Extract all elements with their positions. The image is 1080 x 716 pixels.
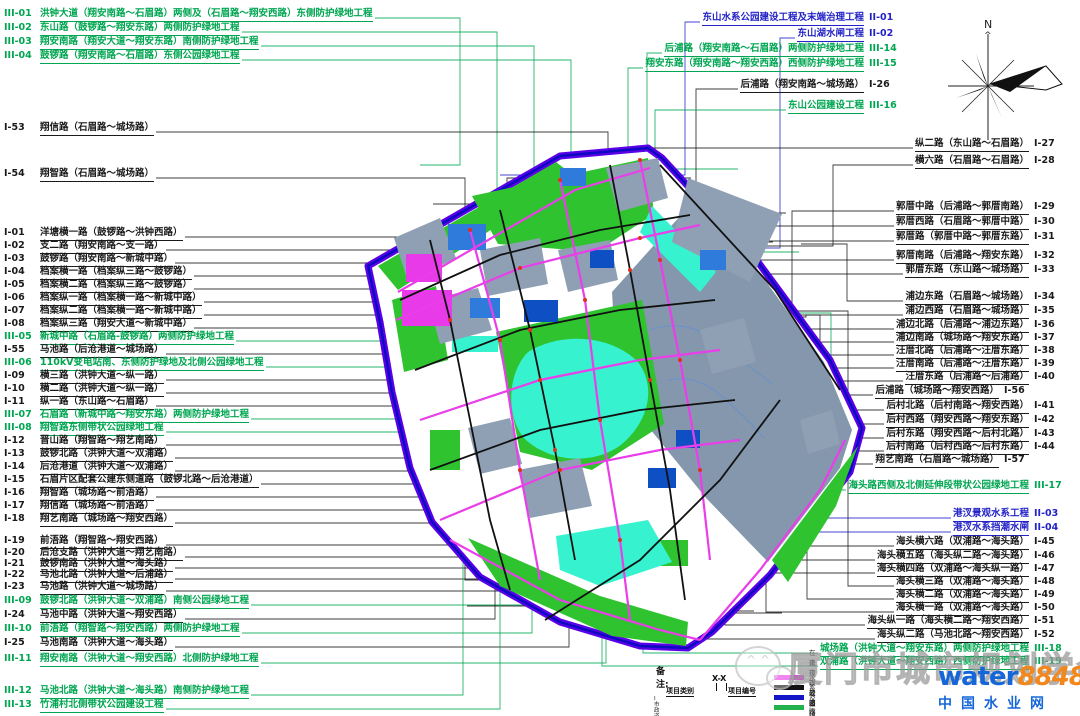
project-title: 后浦路（城场路～翔安西路） [875,385,999,399]
project-title: 石眉片区配套公建东侧道路（鼓锣北路～后沧港道） [40,474,259,488]
project-code: I-05 [4,279,40,291]
project-title: 马池路（洪钟大道～城场路） [40,581,164,595]
project-code: I-24 [4,609,40,621]
project-code: III-13 [4,699,40,711]
project-title: 马池中路（洪钟大道～翔安西路） [40,609,183,623]
project-title: 档案纵一路（档案横一路～新城中路） [40,292,202,306]
project-title: 后村西路（翔安西路～翔安东路） [886,414,1029,428]
project-label-row-i-44: 后村南路（后村西路～后村东路）I-44 [886,441,1070,454]
project-code: I-42 [1029,414,1070,426]
project-label-row-i-34: 浦边东路（石眉路～城场路）I-34 [905,291,1070,304]
project-label-row-i-15: I-15石眉片区配套公建东侧道路（鼓锣北路～后沧港道） [4,474,259,487]
project-label-row-i-01: I-01洋塘横一路（鼓锣路～洪钟西路） [4,227,183,240]
project-title: 新城中路（石眉路-鼓锣路）两侧防护绿地工程 [40,331,234,345]
project-title: 港汊景观水系工程 [953,508,1029,522]
project-label-row-i-16: I-16翔智路（城场路～前浯路） [4,487,154,500]
project-code: I-41 [1029,400,1070,412]
project-code: I-10 [4,383,40,395]
master-plan-map [368,148,862,648]
project-label-row-i-33: 郭厝东路（东山路～城场路）I-33 [905,264,1070,277]
project-title: 翔信路（城场路～前浯路） [40,500,154,514]
project-code: I-16 [4,487,40,499]
project-label-row-ii-01: 东山水系公园建设工程及末端治理工程II-01 [702,12,905,25]
project-label-row-i-36: 浦边北路（后浦路～浦边东路）I-36 [896,319,1070,332]
project-title: 郭厝路（郭厝中路～郭厝东路） [896,231,1029,245]
project-label-row-i-35: 浦边西路（石眉路～城场路）I-35 [905,305,1070,318]
project-code: III-10 [4,623,40,635]
project-title: 档案纵二路（档案横一路～新城中路） [40,305,202,319]
project-label-row-iii-11: III-11翔安南路（洪钟大道～翔安西路）北侧防护绿地工程 [4,653,259,666]
project-title: 浦边南路（城场路～翔安东路） [896,332,1029,346]
logo-8848: 8848 [1017,662,1080,692]
wechat-bubble-icon: ^ ^ [732,640,796,698]
project-label-row-iii-06: III-06110kV变电站南、东侧防护绿地及北侧公园绿地工程 [4,357,264,370]
project-code: I-33 [1029,264,1070,276]
project-label-row-i-42: 后村西路（翔安西路～翔安东路）I-42 [886,414,1070,427]
project-title: 马池南路（洪钟大道～海头路） [40,637,173,651]
project-code: I-27 [1029,138,1070,150]
project-code: I-36 [1029,319,1070,331]
project-title: 档案横二路（档案纵三路～鼓锣路） [40,279,192,293]
project-label-row-i-47: 海头横四路（双浦路～海头纵一路）I-47 [877,563,1070,576]
project-title: 浦边西路（石眉路～城场路） [905,305,1029,319]
project-title: 海头纵二路（马池北路～翔安西路） [877,629,1029,643]
project-label-row-i-38: 汪厝北路（后浦路～汪厝东路）I-38 [896,345,1070,358]
project-title: 海头路西侧及北侧延伸段带状公园绿地工程 [848,480,1029,494]
project-label-row-i-52: 海头纵二路（马池北路～翔安西路）I-52 [877,629,1070,642]
project-label-row-i-18: I-18翔艺南路（城场路～翔安西路） [4,513,173,526]
project-title: 汪厝北路（后浦路～汪厝东路） [896,345,1029,359]
project-label-row-i-13: I-13鼓锣北路（洪钟大道～双浦路） [4,448,173,461]
project-code: III-14 [864,43,905,55]
project-label-row-i-32: 郭厝南路（后浦路～翔安东路）I-32 [896,250,1070,263]
project-title: 海头横四路（双浦路～海头纵一路） [877,563,1029,577]
project-code: I-37 [1029,332,1070,344]
project-code: I-26 [864,79,905,91]
project-title: 东山路（鼓锣路～翔安东路）两侧防护绿地工程 [40,22,240,36]
project-code: I-43 [1029,428,1070,440]
project-code: I-25 [4,637,40,649]
project-label-row-i-30: 郭厝西路（石眉路～郭厝中路）I-30 [896,216,1070,229]
project-title: 翔智路（石眉路～城场路） [40,168,154,182]
project-title: 翔安南路（洪钟大道～翔安西路）北侧防护绿地工程 [40,653,259,667]
project-label-row-ii-02: 东山湖水闸工程II-02 [797,28,905,41]
project-code: I-50 [1029,602,1070,614]
project-title: 晋山路（翔智路～翔艺南路） [40,435,164,449]
project-label-row-iii-09: III-09鼓锣北路（洪钟大道～双浦路）南侧公园绿地工程 [4,595,249,608]
project-title: 110kV变电站南、东侧防护绿地及北侧公园绿地工程 [40,357,264,371]
project-title: 海头纵一路（海头横二路～翔安西路） [867,615,1029,629]
project-code: I-54 [4,168,40,180]
project-code: II-04 [1029,522,1070,534]
project-title: 支二路（翔安南路～支一路） [40,240,164,254]
project-label-row-ii-03: 港汊景观水系工程II-03 [953,508,1070,521]
project-code: I-18 [4,513,40,525]
project-title: 翔艺南路（石眉路～城场路） [875,454,999,468]
project-title: 横六路（石眉路～石眉路） [915,155,1029,169]
project-label-row-i-12: I-12晋山路（翔智路～翔艺南路） [4,435,164,448]
project-label-row-i-04: I-04档案横一路（档案纵三路～鼓锣路） [4,266,192,279]
project-code: I-19 [4,535,40,547]
project-label-row-i-50: 海头横一路（双浦路～海头路）I-50 [896,602,1070,615]
project-label-row-i-49: 海头横二路（双浦路～海头路）I-49 [896,589,1070,602]
project-code: III-02 [4,22,40,34]
project-code: I-55 [4,344,40,356]
project-title: 竹浦村北侧带状公园建设工程 [40,699,164,713]
project-title: 纵二路（东山路～石眉路） [915,138,1029,152]
project-label-row-iii-07: III-07石眉路（新城中路～翔安东路）两侧防护绿地工程 [4,409,249,422]
project-code: III-06 [4,357,40,369]
project-title: 洪钟大道（翔安南路～石眉路）两侧及（石眉路～翔安西路）东侧防护绿地工程 [40,8,373,22]
project-title: 东山公园建设工程 [788,100,864,114]
project-label-row-i-53: I-53翔信路（石眉路～城场路） [4,122,154,135]
project-code: II-03 [1029,508,1070,520]
compass-n-label: N [984,18,992,31]
project-label-row-i-28: 横六路（石眉路～石眉路）I-28 [915,155,1070,168]
project-code: I-23 [4,581,40,593]
project-label-row-i-56: 后浦路（城场路～翔安西路）I-56 [875,385,1040,398]
project-label-row-i-43: 后村东路（翔安西路～后村北路）I-43 [886,428,1070,441]
project-label-row-i-54: I-54翔智路（石眉路～城场路） [4,168,154,181]
project-code: I-11 [4,396,40,408]
project-label-row-i-31: 郭厝路（郭厝中路～郭厝东路）I-31 [896,231,1070,244]
project-title: 纵一路（东山路～石眉路） [40,396,154,410]
project-label-row-i-40: 汪厝东路（后浦路～后浦路）I-40 [905,371,1070,384]
project-code: III-15 [864,58,905,70]
project-code: I-39 [1029,358,1070,370]
project-code: III-17 [1029,480,1070,492]
project-title: 鼓锣路（翔安南路～石眉路）东侧公园绿地工程 [40,50,240,64]
project-title: 后浦路（翔安南路～城场路） [740,79,864,93]
legend-swatch [774,705,804,710]
project-label-row-i-37: 浦边南路（城场路～翔安东路）I-37 [896,332,1070,345]
project-code: I-12 [4,435,40,447]
project-code: III-05 [4,331,40,343]
project-title: 翔智路（城场路～前浯路） [40,487,154,501]
project-code: III-04 [4,50,40,62]
project-title: 横二路（洪钟大道～纵一路） [40,383,164,397]
project-title: 翔安南路（翔安大道～翔安东路）南侧防护绿地工程 [40,36,259,50]
project-code: I-29 [1029,201,1070,213]
project-label-row-iii-16: 东山公园建设工程III-16 [788,100,905,113]
compass-rose: N ^ [948,18,1062,140]
project-title: 翔智路东侧带状公园绿地工程 [40,422,164,436]
logo-water: water [938,662,1017,692]
project-code: I-08 [4,318,40,330]
svg-text:^ ^: ^ ^ [746,653,770,667]
project-code: I-22 [4,569,40,581]
project-code: I-48 [1029,576,1070,588]
project-code: I-56 [999,385,1040,397]
project-label-row-i-24: I-24马池中路（洪钟大道～翔安西路） [4,609,183,622]
project-label-row-i-11: I-11纵一路（东山路～石眉路） [4,396,154,409]
project-code: III-07 [4,409,40,421]
legend-class-lines: I 市政道路 II 水系及岸线 III 公园绿地 [654,696,660,716]
project-code: I-45 [1029,536,1070,548]
project-code: I-14 [4,461,40,473]
project-title: 海头横六路（双浦路～海头路） [896,536,1029,550]
project-label-row-iii-13: III-13竹浦村北侧带状公园建设工程 [4,699,164,712]
project-title: 后村东路（翔安西路～后村北路） [886,428,1029,442]
project-label-row-iii-04: III-04鼓锣路（翔安南路～石眉路）东侧公园绿地工程 [4,50,240,63]
project-label-row-iii-02: III-02东山路（鼓锣路～翔安东路）两侧防护绿地工程 [4,22,240,35]
project-code: III-01 [4,8,40,20]
project-label-row-i-55: I-55马池路（后沧港道～城场路） [4,344,164,357]
project-label-row-i-09: I-09横三路（洪钟大道～纵一路） [4,370,164,383]
project-code: II-01 [864,12,905,24]
project-label-row-i-45: 海头横六路（双浦路～海头路）I-45 [896,536,1070,549]
project-title: 翔信路（石眉路～城场路） [40,122,154,136]
project-title: 鼓锣北路（洪钟大道～双浦路） [40,448,173,462]
project-title: 东山水系公园建设工程及末端治理工程 [702,12,864,26]
project-label-row-iii-17: 海头路西侧及北侧延伸段带状公园绿地工程III-17 [848,480,1070,493]
project-title: 港汊水系挡潮水闸 [953,522,1029,536]
project-title: 东山湖水闸工程 [797,28,864,42]
legend-item-3: 公园绿地 [774,702,816,712]
project-code: II-02 [864,28,905,40]
project-code: III-16 [864,100,905,112]
project-label-row-i-48: 海头横三路（双浦路～海头路）I-48 [896,576,1070,589]
project-code: I-53 [4,122,40,134]
project-code: I-02 [4,240,40,252]
project-title: 海头横一路（双浦路～海头路） [896,602,1029,616]
project-code: I-46 [1029,550,1070,562]
project-title: 马池北路（洪钟大道～海头路）南侧防护绿地工程 [40,685,249,699]
project-title: 洋塘横一路（鼓锣路～洪钟西路） [40,227,183,241]
logo-cn-tagline: 中国水业网 [938,693,1080,713]
project-title: 汪厝东路（后浦路～后浦路） [905,371,1029,385]
project-title: 档案横一路（档案纵三路～鼓锣路） [40,266,192,280]
project-label-row-iii-12: III-12马池北路（洪钟大道～海头路）南侧防护绿地工程 [4,685,249,698]
project-code: I-47 [1029,563,1070,575]
project-label-row-i-39: 汪厝南路（后浦路～汪厝东路）I-39 [896,358,1070,371]
project-label-row-i-05: I-05档案横二路（档案纵三路～鼓锣路） [4,279,192,292]
project-title: 后村北路（后村南路～翔安西路） [886,400,1029,414]
legend-xx-label: X-X [712,674,726,683]
project-code: I-38 [1029,345,1070,357]
project-label-row-iii-08: III-08翔智路东侧带状公园绿地工程 [4,422,164,435]
project-code: III-09 [4,595,40,607]
project-code: I-09 [4,370,40,382]
project-code: I-13 [4,448,40,460]
project-label-row-i-27: 纵二路（东山路～石眉路）I-27 [915,138,1070,151]
project-code: I-07 [4,305,40,317]
project-code: III-11 [4,653,40,665]
project-title: 浦边东路（石眉路～城场路） [905,291,1029,305]
project-code: I-31 [1029,231,1070,243]
project-code: I-35 [1029,305,1070,317]
project-code: I-28 [1029,155,1070,167]
project-code: I-34 [1029,291,1070,303]
project-title: 郭厝中路（后浦路～郭厝南路） [896,201,1029,215]
project-code: I-49 [1029,589,1070,601]
project-label-row-i-26: 后浦路（翔安南路～城场路）I-26 [740,79,905,92]
project-title: 横三路（洪钟大道～纵一路） [40,370,164,384]
project-title: 汪厝南路（后浦路～汪厝东路） [896,358,1029,372]
project-title: 翔安东路（翔安南路～翔安西路）西侧防护绿地工程 [645,58,864,72]
project-label-row-i-08: I-08档案纵三路（翔安大道～新城中路） [4,318,192,331]
project-label-row-iii-14: 后浦路（翔安南路～石眉路）两侧防护绿地工程III-14 [664,43,905,56]
project-label-row-iii-05: III-05新城中路（石眉路-鼓锣路）两侧防护绿地工程 [4,331,234,344]
project-title: 石眉路（新城中路～翔安东路）两侧防护绿地工程 [40,409,249,423]
project-code: I-06 [4,292,40,304]
project-title: 鼓锣北路（洪钟大道～双浦路）南侧公园绿地工程 [40,595,249,609]
project-label-row-i-14: I-14后沧港道（洪钟大道～双浦路） [4,461,173,474]
planning-map-page: N ^ III-01洪钟大道（翔安南路～石眉路）两侧及（石眉路～翔安西路）东侧防… [0,0,1080,716]
project-label-row-i-51: 海头纵一路（海头横二路～翔安西路）I-51 [867,615,1070,628]
project-label-row-i-02: I-02支二路（翔安南路～支一路） [4,240,164,253]
project-title: 郭厝南路（后浦路～翔安东路） [896,250,1029,264]
project-title: 后浦路（翔安南路～石眉路）两侧防护绿地工程 [664,43,864,57]
project-title: 浦边北路（后浦路～浦边东路） [896,319,1029,333]
project-label-row-i-06: I-06档案纵一路（档案横一路～新城中路） [4,292,202,305]
project-label-row-i-07: I-07档案纵二路（档案横一路～新城中路） [4,305,202,318]
project-code: I-01 [4,227,40,239]
project-label-row-i-10: I-10横二路（洪钟大道～纵一路） [4,383,164,396]
project-label-row-ii-04: 港汊水系挡潮水闸II-04 [953,522,1070,535]
project-title: 档案纵三路（翔安大道～新城中路） [40,318,192,332]
project-label-row-i-03: I-03鼓锣路（翔安南路～新城中路） [4,253,173,266]
project-title: 郭厝西路（石眉路～郭厝中路） [896,216,1029,230]
project-label-row-i-29: 郭厝中路（后浦路～郭厝南路）I-29 [896,201,1070,214]
project-label-row-iii-15: 翔安东路（翔安南路～翔安西路）西侧防护绿地工程III-15 [645,58,905,71]
project-code: I-44 [1029,441,1070,453]
project-title: 前浯路（翔智路～翔安西路）两侧防护绿地工程 [40,623,240,637]
project-label-row-i-25: I-25马池南路（洪钟大道～海头路） [4,637,173,650]
project-code: III-03 [4,36,40,48]
project-title: 鼓锣路（翔安南路～新城中路） [40,253,173,267]
project-code: I-04 [4,266,40,278]
project-title: 后沧港道（洪钟大道～双浦路） [40,461,173,475]
project-code: I-40 [1029,371,1070,383]
legend-class-1: I 市政道路 [654,696,660,716]
legend-item-label: 公园绿地 [809,687,816,716]
project-title: 后村南路（后村西路～后村东路） [886,441,1029,455]
project-title: 海头横三路（双浦路～海头路） [896,576,1029,590]
svg-text:^: ^ [984,31,992,41]
project-label-row-i-41: 后村北路（后村南路～翔安西路）I-41 [886,400,1070,413]
project-title: 海头横五路（海头纵二路～海头路） [877,550,1029,564]
project-title: 翔艺南路（城场路～翔安西路） [40,513,173,527]
water8848-logo: water8848.com 中国水业网 [938,662,1080,713]
project-code: I-32 [1029,250,1070,262]
project-title: 马池路（后沧港道～城场路） [40,344,164,358]
project-label-row-iii-10: III-10前浯路（翔智路～翔安西路）两侧防护绿地工程 [4,623,240,636]
project-title: 海头横二路（双浦路～海头路） [896,589,1029,603]
project-code: III-08 [4,422,40,434]
project-label-row-i-23: I-23马池路（洪钟大道～城场路） [4,581,164,594]
project-code: III-12 [4,685,40,697]
project-title: 郭厝东路（东山路～城场路） [905,264,1029,278]
project-label-row-iii-01: III-01洪钟大道（翔安南路～石眉路）两侧及（石眉路～翔安西路）东侧防护绿地工… [4,8,373,21]
project-code: I-15 [4,474,40,486]
project-code: I-51 [1029,615,1070,627]
project-label-row-iii-03: III-03翔安南路（翔安大道～翔安东路）南侧防护绿地工程 [4,36,259,49]
project-label-row-i-57: 翔艺南路（石眉路～城场路）I-57 [875,454,1040,467]
project-label-row-i-17: I-17翔信路（城场路～前浯路） [4,500,154,513]
project-code: I-17 [4,500,40,512]
project-label-row-i-46: 海头横五路（海头纵二路～海头路）I-46 [877,550,1070,563]
legend-category-label: 项目类别 [666,686,694,697]
project-code: I-52 [1029,629,1070,641]
project-code: I-03 [4,253,40,265]
project-code: I-30 [1029,216,1070,228]
project-code: I-57 [999,454,1040,466]
